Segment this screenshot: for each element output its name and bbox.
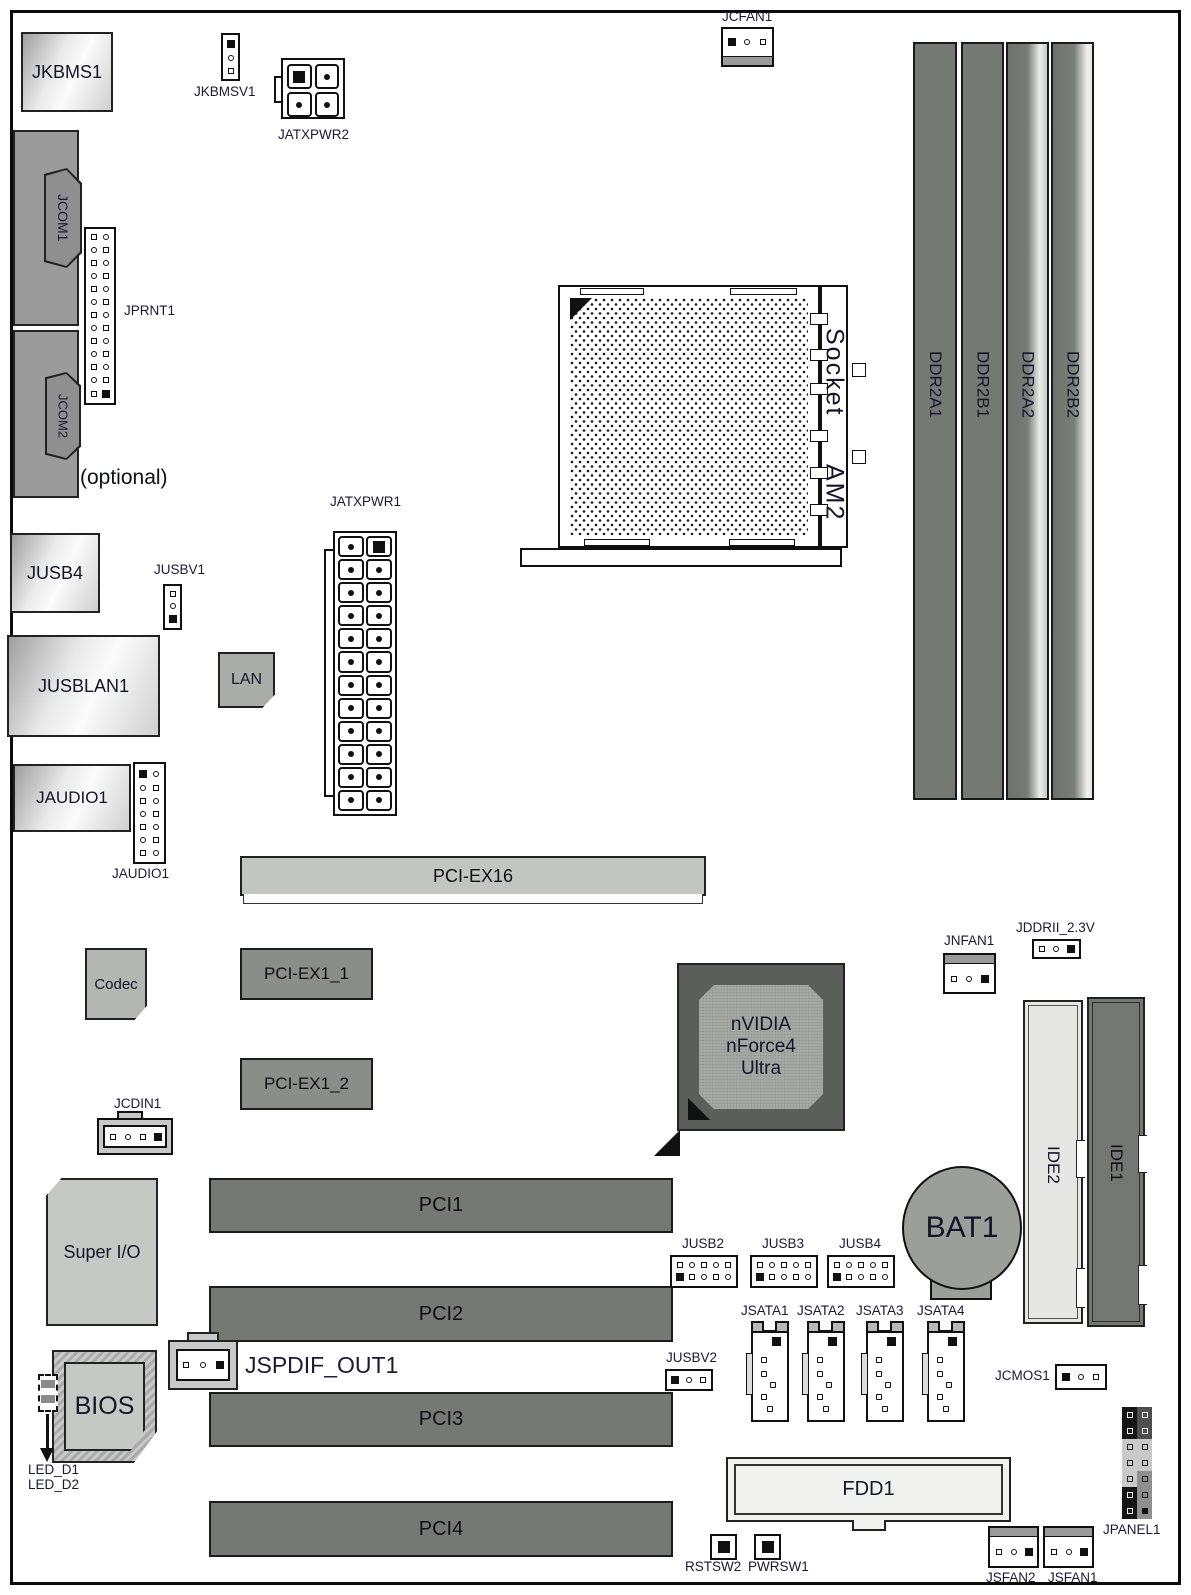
pci1-slot: PCI1 [209, 1178, 673, 1233]
jaudio1-header-label: JAUDIO1 [112, 866, 169, 881]
jusb2-label: JUSB2 [682, 1236, 724, 1251]
jsfan2-label: JSFAN2 [986, 1570, 1036, 1585]
ide1-label: IDE1 [1106, 1144, 1126, 1182]
jusb3-header [750, 1255, 818, 1288]
bat1-battery: BAT1 [902, 1166, 1022, 1290]
pciex1-2-label: PCI-EX1_2 [264, 1074, 349, 1094]
jddrii-label: JDDRII_2.3V [1016, 920, 1095, 935]
jprnt1-label: JPRNT1 [124, 303, 175, 318]
superio-label: Super I/O [63, 1242, 140, 1263]
socket-label-line2: AM2 [820, 464, 849, 521]
jcfan1-header [721, 27, 774, 67]
ide2-label: IDE2 [1043, 1146, 1063, 1184]
jkbmsv1-label: JKBMSV1 [194, 84, 256, 99]
jsata4-label: JSATA4 [917, 1303, 965, 1318]
socket-slot-top-left [580, 288, 644, 295]
jcom2-dsub: JCOM2 [45, 372, 81, 460]
codec-chip: Codec [85, 948, 147, 1020]
jkbms1-port: JKBMS1 [21, 32, 113, 112]
jsata2-label: JSATA2 [797, 1303, 845, 1318]
nvidia-label-line3: Ultra [741, 1058, 781, 1080]
nvidia-label-line1: nVIDIA [731, 1014, 791, 1036]
pci2-label: PCI2 [419, 1303, 463, 1326]
ddr2b1-label: DDR2B1 [973, 351, 993, 418]
led-component [38, 1374, 58, 1412]
ide2-key-notch-2 [1076, 1268, 1085, 1308]
jusbv2-header [665, 1369, 713, 1391]
jcfan1-label: JCFAN1 [722, 9, 772, 24]
pciex16-label: PCI-EX16 [433, 866, 513, 887]
pci2-slot: PCI2 [209, 1286, 673, 1342]
jaudio1-port-label: JAUDIO1 [36, 788, 108, 808]
fdd1-key-notch [852, 1520, 886, 1531]
led-d1-label: LED_D1 [28, 1462, 79, 1477]
nvidia-label-line2: nForce4 [726, 1036, 796, 1058]
fdd1-connector-inner: FDD1 [734, 1464, 1003, 1515]
pciex16-slot: PCI-EX16 [240, 856, 706, 896]
rstsw2-label: RSTSW2 [685, 1559, 741, 1574]
fdd1-label: FDD1 [842, 1478, 894, 1501]
pci3-label: PCI3 [419, 1408, 463, 1431]
socket-slot-bottom-left [584, 539, 650, 546]
jcdin1-label: JCDIN1 [114, 1096, 161, 1111]
jcmos1-label: JCMOS1 [995, 1368, 1050, 1383]
bios-label: BIOS [75, 1392, 135, 1421]
pciex1-1-label: PCI-EX1_1 [264, 964, 349, 984]
motherboard-diagram: JKBMS1 JKBMSV1 JATXPWR2 JCFAN1 JCOM1 JPR… [0, 0, 1191, 1595]
socket-label-line1: Socket [820, 328, 849, 416]
jusbv1-label: JUSBV1 [154, 562, 205, 577]
jatxpwr2-connector [281, 58, 345, 119]
jsata1-connector [751, 1321, 789, 1422]
socket-am2-pinfield [570, 298, 808, 535]
jatxpwr1-label: JATXPWR1 [330, 494, 401, 509]
jspdif-label: JSPDIF_OUT1 [245, 1352, 398, 1379]
jsfan1-label: JSFAN1 [1048, 1570, 1098, 1585]
pciex1-1-slot: PCI-EX1_1 [240, 948, 373, 1000]
socket-base-bar [520, 548, 842, 567]
jkbmsv1-header [221, 33, 240, 81]
jcom1-dsub: JCOM1 [44, 168, 82, 268]
jsata3-connector [866, 1321, 904, 1422]
jsfan1-header [1043, 1526, 1094, 1568]
jusblan1-port: JUSBLAN1 [7, 635, 160, 737]
ddr2a2-label: DDR2A2 [1018, 351, 1038, 418]
rstsw2-button [710, 1534, 737, 1560]
socket-key-square-2 [852, 450, 866, 464]
led-d2-label: LED_D2 [28, 1477, 79, 1492]
jsata3-label: JSATA3 [856, 1303, 904, 1318]
jusbv2-label: JUSBV2 [666, 1350, 717, 1365]
jusbv1-header [163, 584, 182, 630]
jatxpwr1-connector [333, 531, 397, 816]
pci4-slot: PCI4 [209, 1501, 673, 1557]
jcdin1-connector [97, 1118, 173, 1155]
superio-chip: Super I/O [46, 1178, 158, 1326]
jprnt1-header [84, 227, 116, 405]
jusb3-label: JUSB3 [762, 1236, 804, 1251]
pwrsw1-button [754, 1534, 781, 1560]
jusb4-port-label: JUSB4 [27, 563, 83, 584]
jsata2-connector [807, 1321, 845, 1422]
ide1-key-notch-2 [1138, 1265, 1147, 1305]
jsfan2-header [988, 1526, 1039, 1568]
bios-chip-inner: BIOS [64, 1362, 145, 1451]
jcmos1-header [1055, 1364, 1107, 1390]
lan-label: LAN [231, 671, 262, 689]
lan-chip: LAN [218, 652, 275, 708]
optional-label: (optional) [80, 466, 168, 490]
jpanel1-header [1122, 1407, 1152, 1519]
jddrii-header [1032, 939, 1081, 959]
jusb4-header-label: JUSB4 [839, 1236, 881, 1251]
jaudio1-header [133, 762, 166, 864]
jsata4-connector [927, 1321, 965, 1422]
jusb2-header [670, 1255, 738, 1288]
jsata1-label: JSATA1 [741, 1303, 789, 1318]
pciex16-retainer [243, 894, 703, 904]
socket-key-square-1 [852, 363, 866, 377]
jnfan1-label: JNFAN1 [944, 933, 994, 948]
bat1-label: BAT1 [926, 1211, 999, 1245]
pciex1-2-slot: PCI-EX1_2 [240, 1058, 373, 1110]
jusblan1-label: JUSBLAN1 [38, 676, 129, 697]
socket-slot-bottom-right [729, 539, 795, 546]
led-arrow-head [40, 1448, 54, 1462]
pci4-label: PCI4 [419, 1518, 463, 1541]
jkbms1-label: JKBMS1 [32, 62, 102, 83]
jusb4-port: JUSB4 [10, 533, 100, 613]
ddr2a1-label: DDR2A1 [925, 351, 945, 418]
jatxpwr2-label: JATXPWR2 [278, 127, 349, 142]
socket-slot-top-right [730, 288, 797, 295]
jpanel1-label: JPANEL1 [1103, 1522, 1161, 1537]
jspdif-connector [168, 1340, 238, 1390]
jcom2-label: JCOM2 [56, 394, 71, 438]
jusb4-header [827, 1255, 895, 1288]
jcfan1-base [723, 56, 772, 65]
pwrsw1-label: PWRSW1 [748, 1559, 809, 1574]
pci1-label: PCI1 [419, 1194, 463, 1217]
jnfan1-header [943, 953, 996, 994]
pci3-slot: PCI3 [209, 1392, 673, 1447]
codec-label: Codec [94, 976, 137, 993]
jaudio1-port: JAUDIO1 [13, 764, 131, 832]
ddr2b2-label: DDR2B2 [1063, 351, 1083, 418]
jcom1-label: JCOM1 [55, 194, 71, 241]
